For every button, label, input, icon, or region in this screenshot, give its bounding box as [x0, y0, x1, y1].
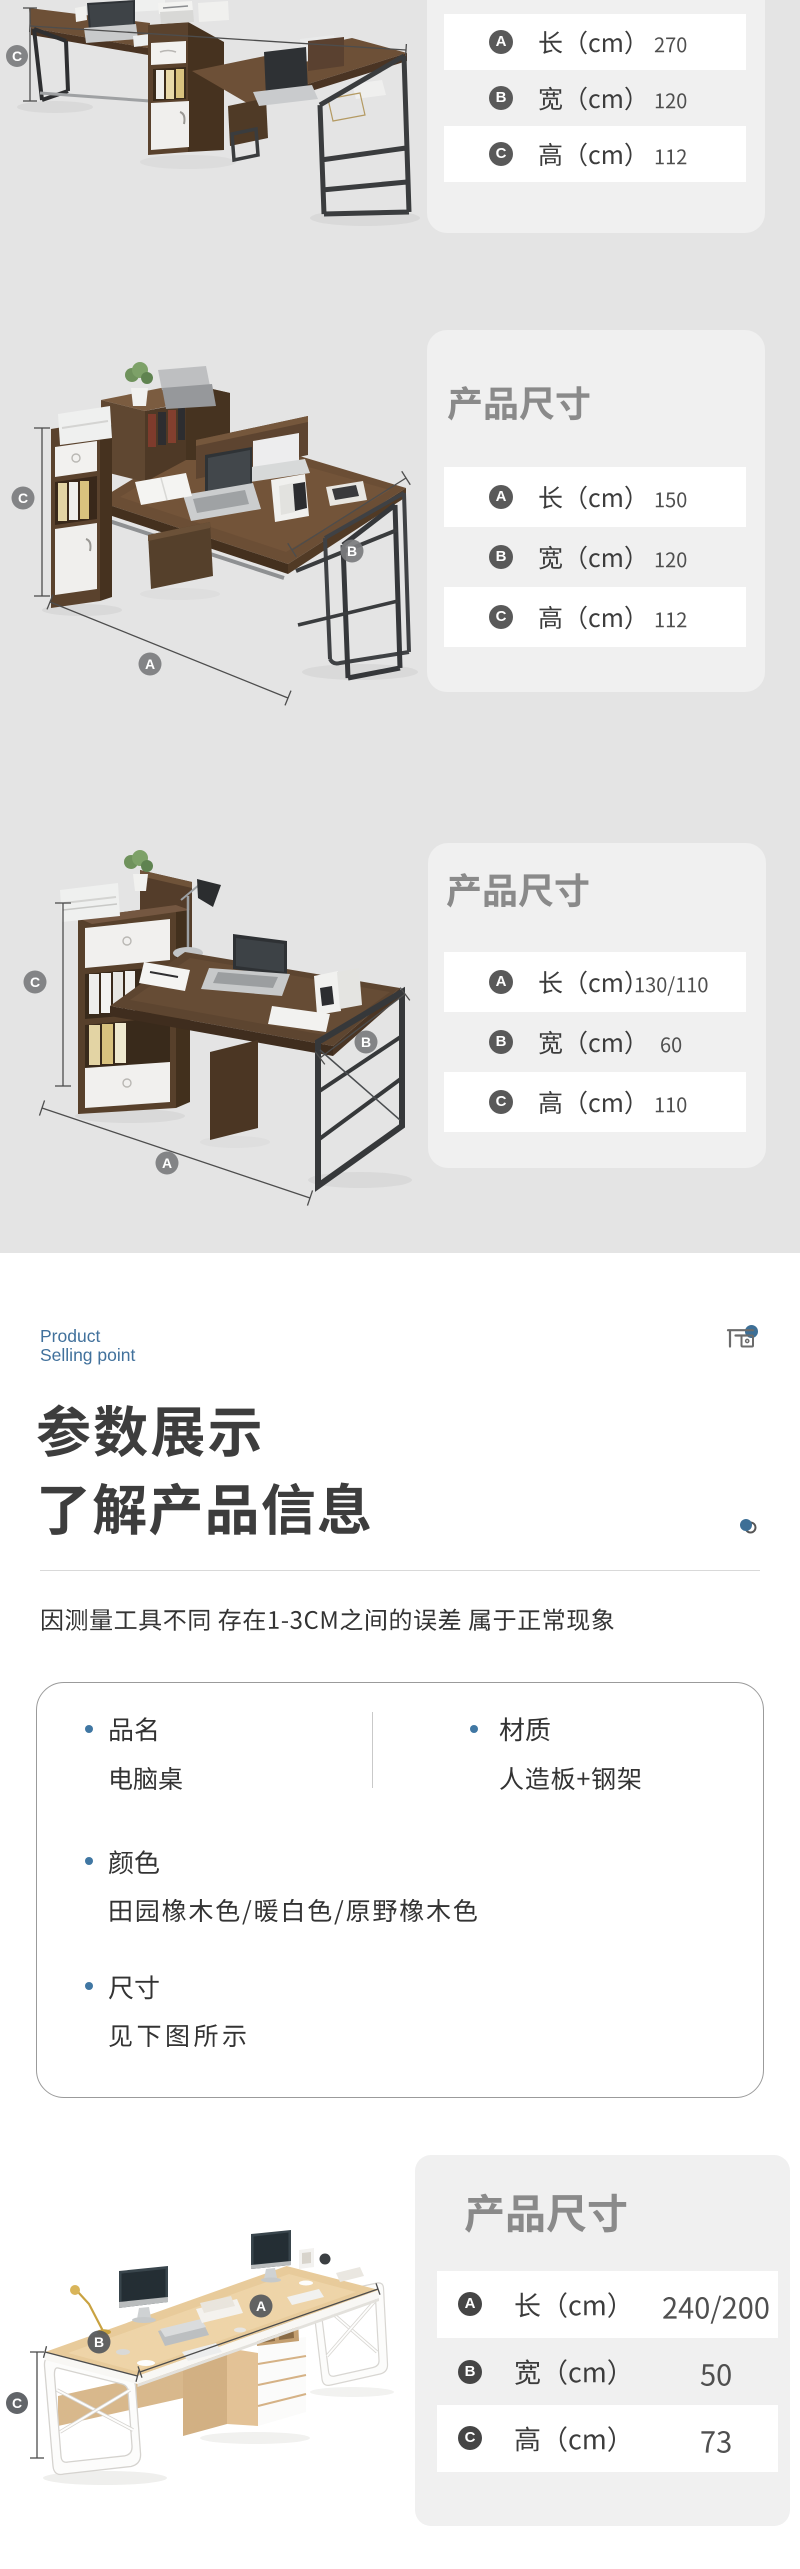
svg-text:A: A	[145, 656, 155, 672]
svg-text:B: B	[347, 543, 357, 559]
svg-text:C: C	[18, 490, 28, 506]
svg-text:A: A	[162, 1155, 172, 1171]
svg-text:A: A	[256, 2298, 266, 2314]
svg-text:C: C	[12, 48, 22, 64]
svg-text:B: B	[361, 1034, 371, 1050]
svg-text:C: C	[30, 974, 40, 990]
svg-text:B: B	[94, 2334, 104, 2350]
svg-text:C: C	[12, 2395, 22, 2411]
